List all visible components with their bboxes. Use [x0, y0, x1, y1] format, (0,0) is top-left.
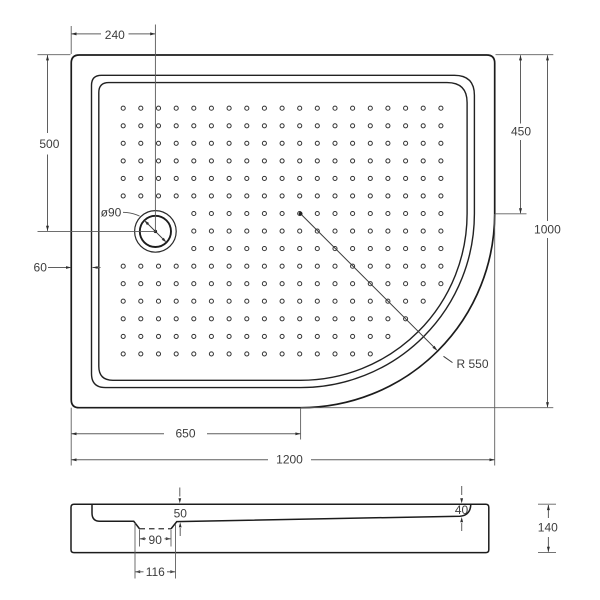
svg-text:650: 650 [175, 427, 195, 441]
svg-text:240: 240 [105, 28, 125, 42]
svg-text:40: 40 [455, 503, 469, 517]
svg-text:90: 90 [149, 533, 163, 547]
svg-text:1200: 1200 [276, 453, 303, 467]
svg-text:50: 50 [174, 506, 188, 520]
svg-text:ø90: ø90 [101, 205, 122, 219]
svg-text:1000: 1000 [534, 223, 561, 237]
svg-text:60: 60 [34, 260, 48, 274]
svg-text:116: 116 [146, 565, 165, 579]
svg-text:R 550: R 550 [457, 357, 489, 371]
svg-text:140: 140 [538, 520, 558, 534]
svg-text:500: 500 [39, 137, 59, 151]
svg-text:450: 450 [511, 125, 531, 139]
